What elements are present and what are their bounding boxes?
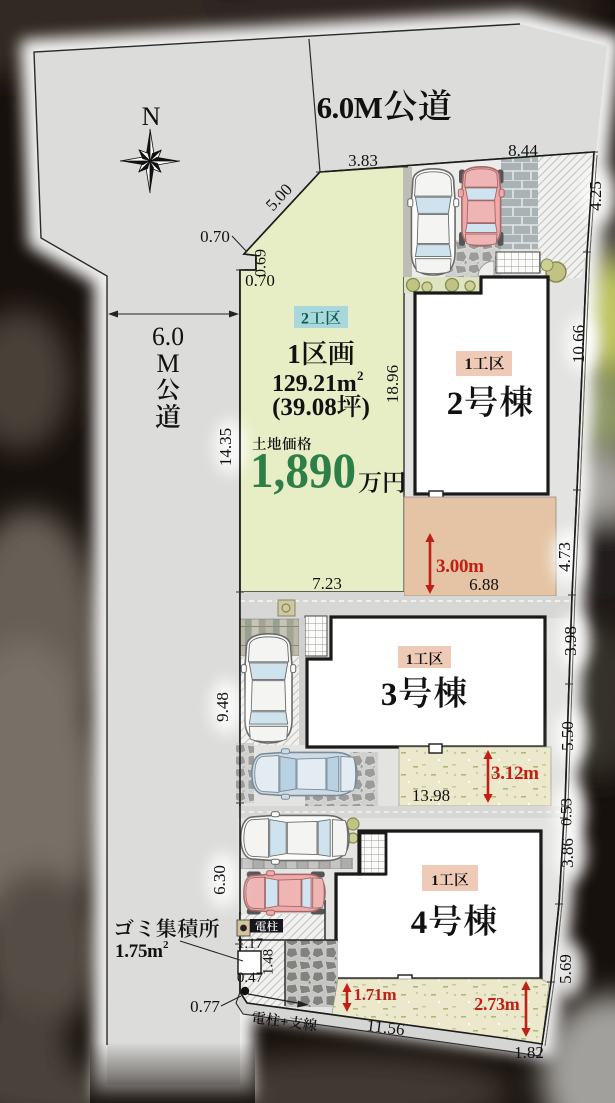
svg-text:4.73: 4.73: [555, 542, 574, 572]
svg-text:1,890: 1,890: [250, 442, 356, 498]
svg-text:18.96: 18.96: [383, 365, 402, 403]
svg-text:1: 1: [465, 356, 473, 373]
svg-text:1.71m: 1.71m: [354, 985, 397, 1004]
svg-text:1.82: 1.82: [514, 1043, 544, 1062]
svg-text:1: 1: [431, 873, 439, 889]
svg-text:9.48: 9.48: [213, 692, 232, 722]
svg-text:2.73m: 2.73m: [474, 994, 520, 1014]
svg-text:6.0M: 6.0M: [317, 90, 383, 125]
svg-text:3.83: 3.83: [348, 151, 378, 170]
svg-text:0.69: 0.69: [253, 249, 270, 277]
svg-text:(39.08: (39.08: [272, 394, 337, 421]
svg-text:3.00m: 3.00m: [436, 556, 484, 577]
svg-text:2: 2: [301, 311, 309, 328]
svg-text:6.88: 6.88: [469, 575, 499, 594]
svg-text:2: 2: [447, 386, 464, 422]
svg-text:1: 1: [287, 339, 301, 369]
svg-text:2: 2: [163, 939, 169, 951]
svg-text:13.98: 13.98: [412, 786, 450, 805]
svg-text:0.47: 0.47: [237, 970, 264, 986]
svg-text:5.69: 5.69: [556, 954, 575, 984]
svg-text:N: N: [142, 102, 161, 131]
svg-text:6.30: 6.30: [210, 865, 229, 895]
svg-text:1.75m: 1.75m: [115, 941, 163, 962]
svg-text:4: 4: [411, 905, 428, 941]
svg-text:3.98: 3.98: [561, 626, 580, 656]
svg-text:0.53: 0.53: [559, 798, 576, 826]
svg-text:3.12m: 3.12m: [491, 763, 539, 784]
svg-text:0.70: 0.70: [200, 227, 230, 246]
svg-text:3: 3: [381, 677, 398, 713]
svg-text:5.50: 5.50: [558, 721, 577, 751]
svg-text:6.0: 6.0: [152, 322, 184, 351]
svg-text:0.77: 0.77: [190, 997, 220, 1016]
svg-text:): ): [362, 394, 370, 421]
svg-text:1: 1: [406, 652, 414, 668]
svg-text:2: 2: [357, 368, 364, 383]
svg-text:7.23: 7.23: [312, 574, 342, 593]
svg-text:3.86: 3.86: [558, 838, 577, 868]
svg-text:10.66: 10.66: [569, 325, 588, 363]
svg-text:14.35: 14.35: [216, 428, 235, 466]
svg-text:4.25: 4.25: [586, 181, 605, 211]
svg-text:M: M: [156, 349, 179, 378]
